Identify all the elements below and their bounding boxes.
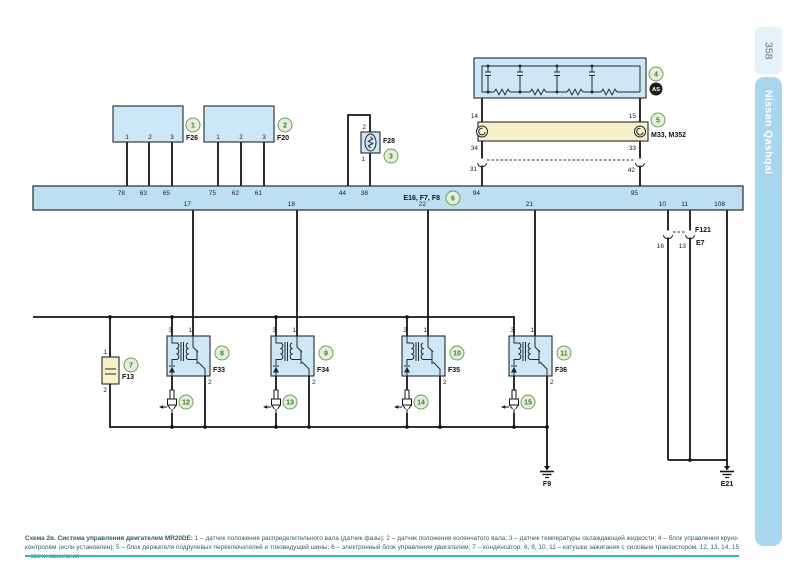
svg-text:2: 2 xyxy=(312,379,316,386)
component-label: F28 xyxy=(383,138,395,145)
bus-pin: 17 xyxy=(184,201,192,208)
cruise-control-module: 4 AS 14 15 xyxy=(471,58,663,120)
svg-text:13: 13 xyxy=(286,400,294,407)
svg-text:3: 3 xyxy=(168,327,172,334)
bus-pin: 38 xyxy=(361,190,369,197)
bus-pin: 65 xyxy=(163,190,171,197)
bus-pin: 21 xyxy=(526,201,534,208)
spark-plug-12: 12 xyxy=(159,376,193,427)
coolant-temp-sensor-f28: 2 1 F28 3 xyxy=(361,124,398,163)
svg-text:3: 3 xyxy=(510,327,514,334)
spark-plug-icon xyxy=(159,376,177,427)
bus-pin: 18 xyxy=(288,201,296,208)
svg-text:2: 2 xyxy=(550,379,554,386)
svg-text:3: 3 xyxy=(262,134,266,141)
spiral-contact-icon xyxy=(635,126,646,137)
connector-label: E7 xyxy=(696,240,705,247)
svg-text:13: 13 xyxy=(679,243,687,250)
svg-text:15: 15 xyxy=(629,113,637,120)
page-number: 358 xyxy=(763,42,775,60)
bus-pin: 62 xyxy=(232,190,240,197)
spark-plug-icon xyxy=(263,376,281,427)
bus-pin: 108 xyxy=(714,201,725,208)
svg-text:1: 1 xyxy=(423,327,427,334)
svg-text:1: 1 xyxy=(188,327,192,334)
svg-text:16: 16 xyxy=(657,243,665,250)
ground-e21: E21 xyxy=(720,463,734,488)
component-label: F35 xyxy=(448,367,460,374)
edition-sidebar: Nissan Qashqai xyxy=(755,77,782,546)
crankshaft-position-sensor-f20: 1 2 3 F20 2 xyxy=(204,106,292,142)
component-label: F36 xyxy=(555,367,567,374)
svg-text:10: 10 xyxy=(453,351,461,358)
svg-text:E21: E21 xyxy=(721,481,734,488)
camshaft-position-sensor-f26: 1 2 3 F26 1 xyxy=(113,106,200,142)
bus-pin: 22 xyxy=(419,201,427,208)
bus-pin: 94 xyxy=(473,190,481,197)
svg-text:1: 1 xyxy=(125,134,129,141)
svg-text:3: 3 xyxy=(403,327,407,334)
bus-pin: 61 xyxy=(255,190,263,197)
svg-text:6: 6 xyxy=(451,196,455,203)
svg-text:1: 1 xyxy=(292,327,296,334)
spark-plug-icon xyxy=(394,376,412,427)
svg-text:3: 3 xyxy=(170,134,174,141)
svg-text:42: 42 xyxy=(628,167,636,174)
svg-text:7: 7 xyxy=(129,363,133,370)
svg-text:F9: F9 xyxy=(543,481,551,488)
ignition-coil-f34: 3 1 2 9 F34 xyxy=(271,327,333,386)
spiral-contact-icon xyxy=(477,126,488,137)
svg-text:2: 2 xyxy=(103,387,107,394)
bus-pin: 63 xyxy=(140,190,148,197)
svg-text:1: 1 xyxy=(103,349,107,356)
wiring-schematic: 78 63 65 75 62 61 44 38 94 95 17 18 22 2… xyxy=(0,0,800,530)
svg-text:9: 9 xyxy=(324,351,328,358)
component-label: F34 xyxy=(317,367,329,374)
svg-text:1: 1 xyxy=(191,123,195,130)
footer-rule xyxy=(25,555,739,557)
svg-text:4: 4 xyxy=(654,72,658,79)
ignition-coil-f36: 3 1 2 11 F36 xyxy=(509,327,571,386)
bus-pin: 10 xyxy=(659,201,667,208)
ignition-coil-f35: 3 1 2 10 F35 xyxy=(402,327,464,386)
ground-icon xyxy=(540,463,554,478)
page-number-tab: 358 xyxy=(755,27,782,74)
svg-text:2: 2 xyxy=(283,123,287,130)
spark-plug-13: 13 xyxy=(263,376,297,427)
svg-text:34: 34 xyxy=(471,145,479,152)
spark-plug-15: 15 xyxy=(501,376,535,427)
manual-page: 78 63 65 75 62 61 44 38 94 95 17 18 22 2… xyxy=(0,0,800,588)
svg-text:AS: AS xyxy=(652,87,660,93)
svg-text:31: 31 xyxy=(470,166,478,173)
svg-text:2: 2 xyxy=(443,379,447,386)
svg-text:15: 15 xyxy=(524,400,532,407)
component-label: M33, M352 xyxy=(651,132,686,139)
svg-text:2: 2 xyxy=(362,124,366,131)
capacitor-f13: 1 2 7 F13 xyxy=(102,349,138,394)
ground-f9: F9 xyxy=(540,463,554,488)
svg-text:1: 1 xyxy=(530,327,534,334)
bus-name: E16, F7, F8 xyxy=(403,195,440,202)
caption-title: Схема 2в. Система управления двигателем … xyxy=(25,535,193,542)
svg-text:11: 11 xyxy=(560,351,568,358)
ground-icon xyxy=(720,463,734,478)
svg-text:12: 12 xyxy=(182,400,190,407)
component-label: F33 xyxy=(213,367,225,374)
svg-text:8: 8 xyxy=(220,351,224,358)
bus-pin: 44 xyxy=(339,190,347,197)
svg-text:3: 3 xyxy=(272,327,276,334)
svg-text:2: 2 xyxy=(148,134,152,141)
svg-text:3: 3 xyxy=(389,154,393,161)
connector-f121-e7: F121 E7 16 13 xyxy=(657,227,711,250)
spark-plug-14: 14 xyxy=(394,376,428,427)
ignition-coil-f33: 3 1 2 8 F33 xyxy=(167,327,229,386)
component-label: F26 xyxy=(186,135,198,142)
svg-text:5: 5 xyxy=(656,118,660,125)
edition-title: Nissan Qashqai xyxy=(763,90,775,174)
svg-text:1: 1 xyxy=(216,134,220,141)
svg-text:1: 1 xyxy=(361,156,365,163)
ecu-bus-bar: 78 63 65 75 62 61 44 38 94 95 17 18 22 2… xyxy=(33,186,743,210)
svg-text:2: 2 xyxy=(239,134,243,141)
bus-pin: 78 xyxy=(118,190,126,197)
component-label: F20 xyxy=(277,135,289,142)
svg-text:14: 14 xyxy=(471,113,479,120)
svg-text:33: 33 xyxy=(629,145,637,152)
component-label: F13 xyxy=(122,374,134,381)
clock-spring-bus-holder: 5 M33, M352 34 33 31 42 xyxy=(470,113,686,174)
bus-pin: 11 xyxy=(681,201,688,208)
bus-pin: 75 xyxy=(209,190,217,197)
spark-plug-icon xyxy=(501,376,519,427)
svg-text:2: 2 xyxy=(208,379,212,386)
svg-text:14: 14 xyxy=(417,400,425,407)
connector-label: F121 xyxy=(695,227,711,234)
bus-pin: 95 xyxy=(631,190,639,197)
